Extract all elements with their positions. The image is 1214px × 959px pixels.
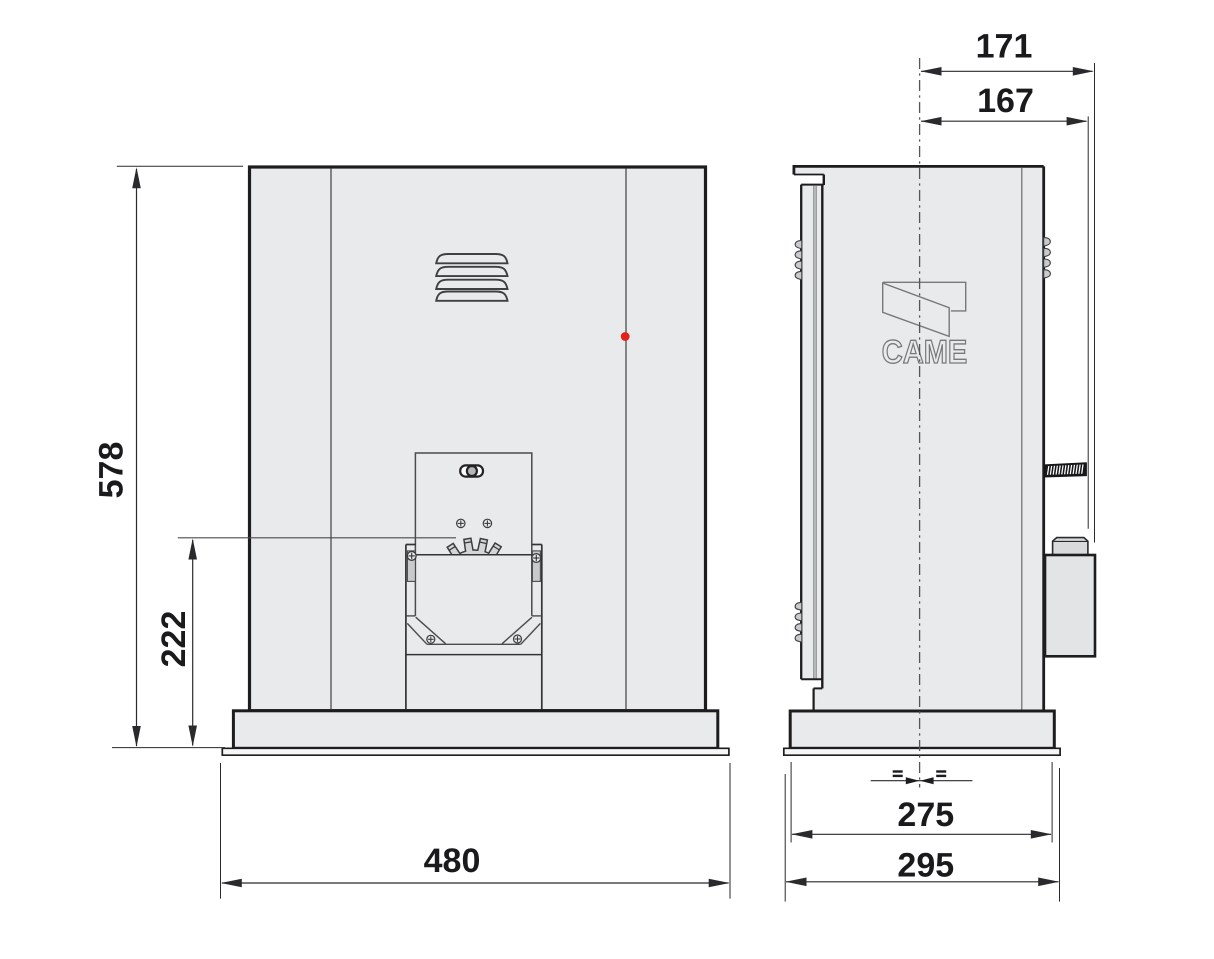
svg-text:CAME: CAME — [882, 333, 968, 370]
svg-text:275: 275 — [897, 796, 954, 834]
svg-text:171: 171 — [976, 28, 1033, 66]
svg-text:578: 578 — [93, 442, 131, 499]
svg-text:480: 480 — [424, 842, 481, 880]
svg-text:295: 295 — [897, 846, 954, 884]
svg-text:222: 222 — [155, 611, 193, 668]
svg-text:167: 167 — [977, 82, 1034, 120]
